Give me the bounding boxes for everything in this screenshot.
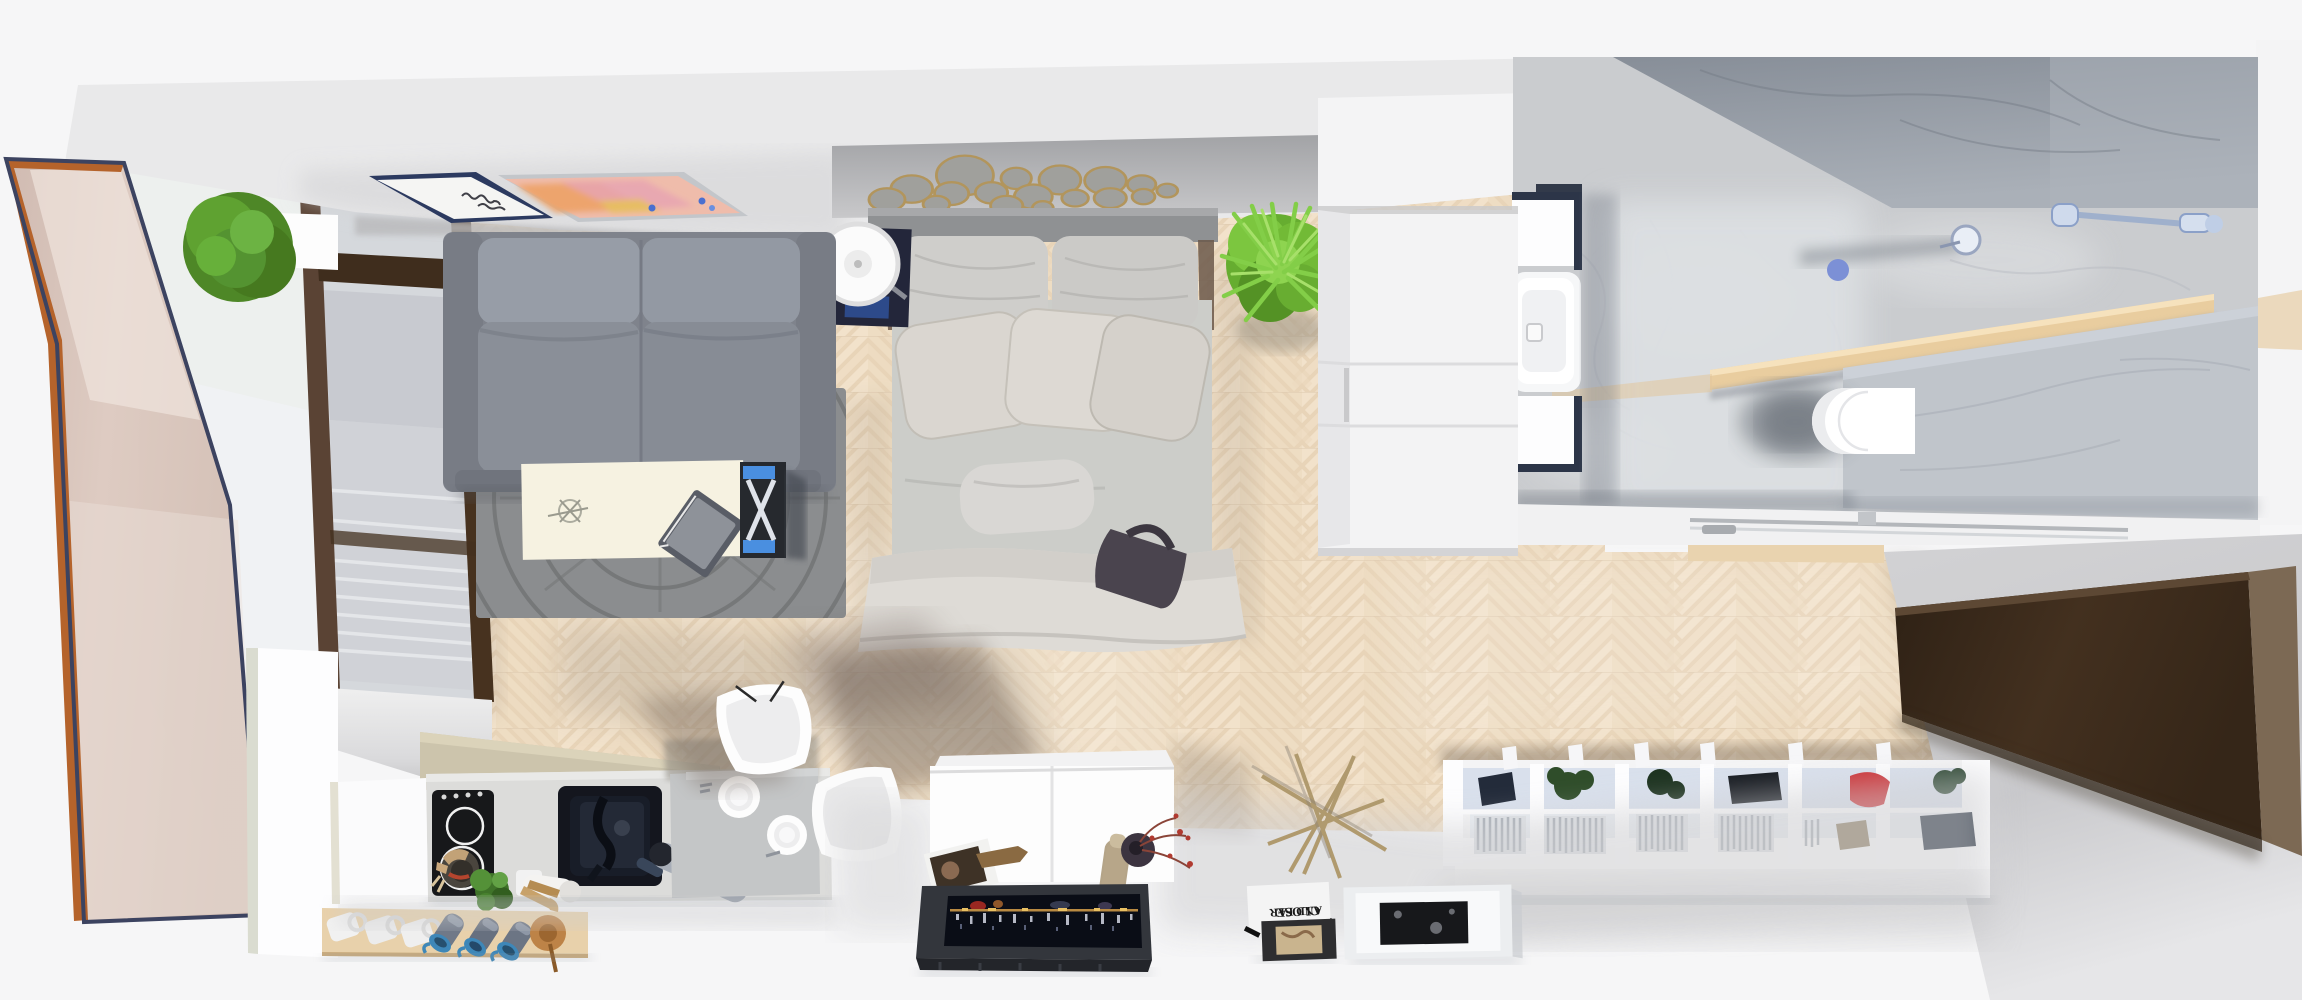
svg-text:AND FAR: AND FAR [1269, 903, 1323, 920]
